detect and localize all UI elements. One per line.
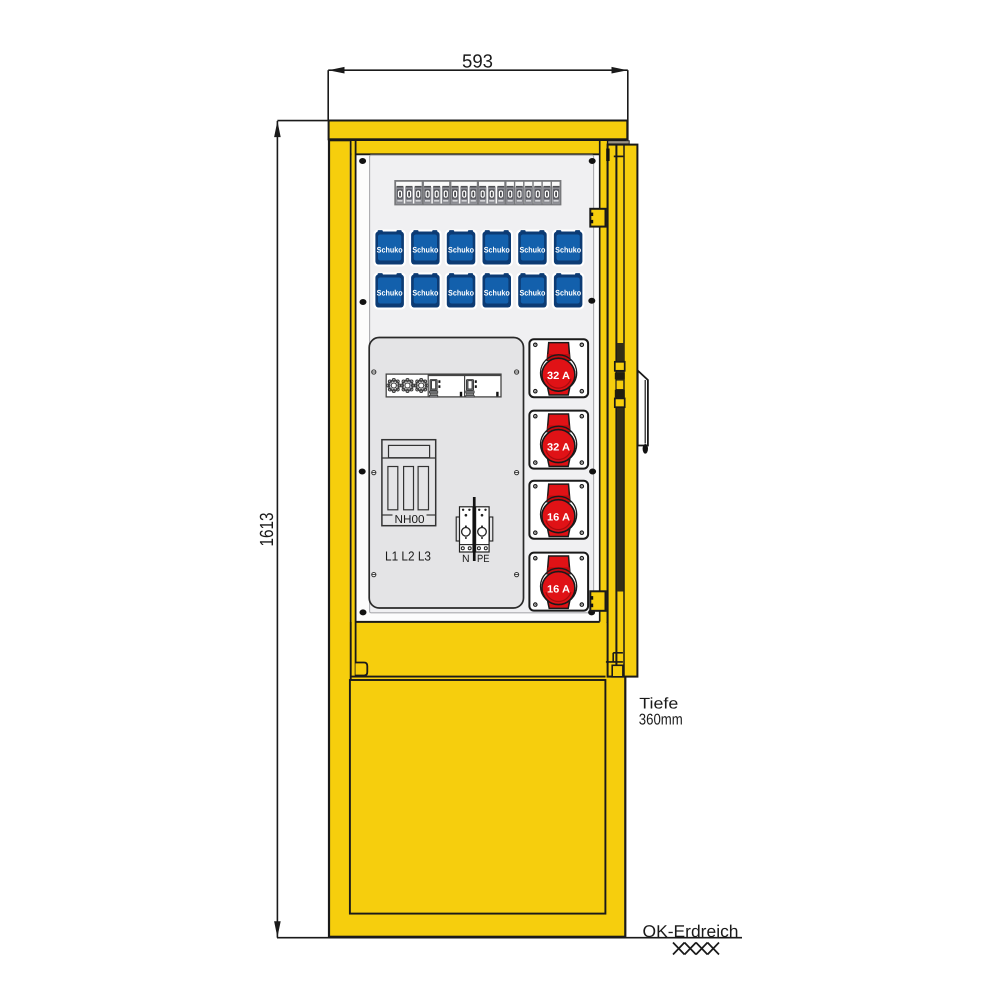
svg-text:Tiefe: Tiefe — [639, 696, 678, 713]
svg-text:L1 L2 L3: L1 L2 L3 — [385, 549, 431, 564]
svg-text:593: 593 — [462, 51, 493, 72]
svg-text:NH00: NH00 — [395, 514, 425, 526]
svg-text:16 A: 16 A — [547, 583, 570, 595]
svg-text:OK-Erdreich: OK-Erdreich — [643, 922, 739, 941]
svg-text:32 A: 32 A — [547, 370, 570, 382]
svg-text:PE: PE — [477, 553, 490, 565]
svg-text:32 A: 32 A — [547, 441, 570, 453]
svg-text:1613: 1613 — [257, 513, 278, 547]
svg-text:N: N — [462, 553, 470, 565]
svg-text:360mm: 360mm — [639, 712, 683, 729]
svg-text:16 A: 16 A — [547, 512, 570, 524]
